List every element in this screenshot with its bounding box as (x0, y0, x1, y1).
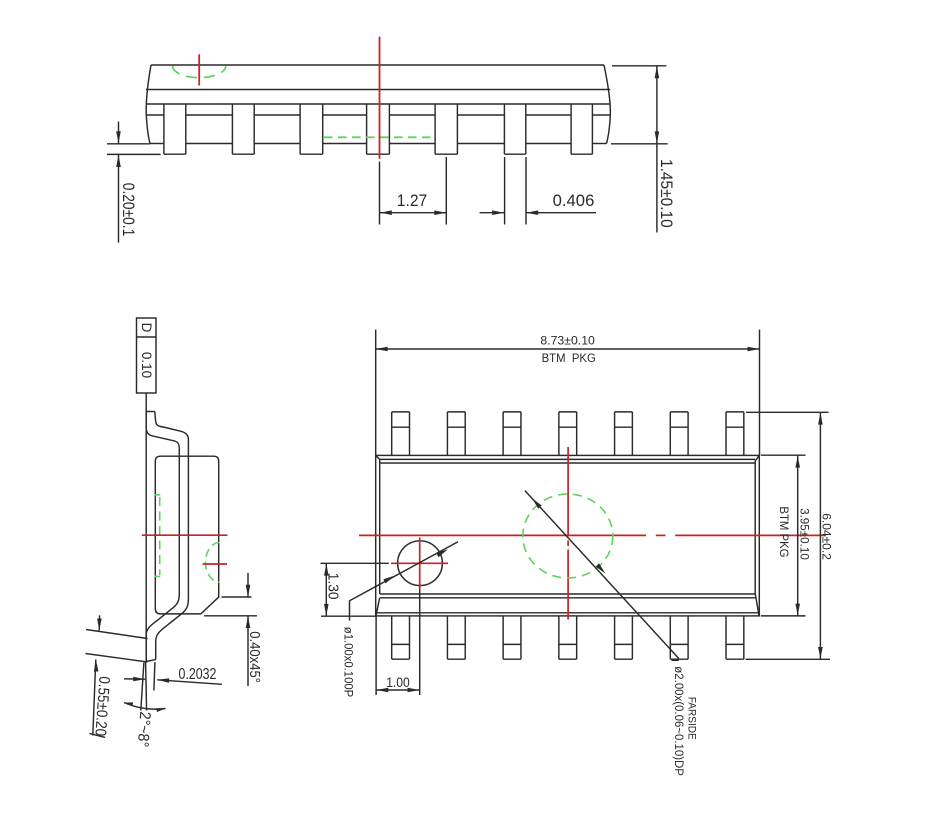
svg-text:D: D (139, 323, 154, 333)
svg-text:0.2032: 0.2032 (179, 665, 217, 683)
svg-text:BTM PKG: BTM PKG (542, 353, 596, 365)
svg-text:0.40x45°: 0.40x45° (247, 631, 264, 683)
svg-text:FARSIDE: FARSIDE (685, 697, 698, 740)
svg-text:0.406: 0.406 (553, 191, 595, 210)
svg-text:ø2.00x(0.06~0.10)DP: ø2.00x(0.06~0.10)DP (672, 666, 685, 776)
svg-text:1.00: 1.00 (386, 674, 410, 690)
svg-text:1.45±0.10: 1.45±0.10 (657, 159, 676, 228)
svg-text:2°~8°: 2°~8° (134, 711, 153, 748)
svg-text:8.73±0.10: 8.73±0.10 (540, 333, 595, 347)
svg-text:6.04±0.2: 6.04±0.2 (820, 513, 834, 560)
svg-text:1.30: 1.30 (325, 573, 341, 600)
svg-text:0.10: 0.10 (139, 352, 154, 378)
svg-text:0.20±0.1: 0.20±0.1 (118, 183, 137, 236)
svg-text:1.27: 1.27 (397, 192, 427, 211)
svg-text:BTM PKG: BTM PKG (777, 506, 789, 557)
svg-text:ø1.00x0.100P: ø1.00x0.100P (341, 627, 353, 698)
svg-text:3.95±0.10: 3.95±0.10 (797, 508, 811, 560)
